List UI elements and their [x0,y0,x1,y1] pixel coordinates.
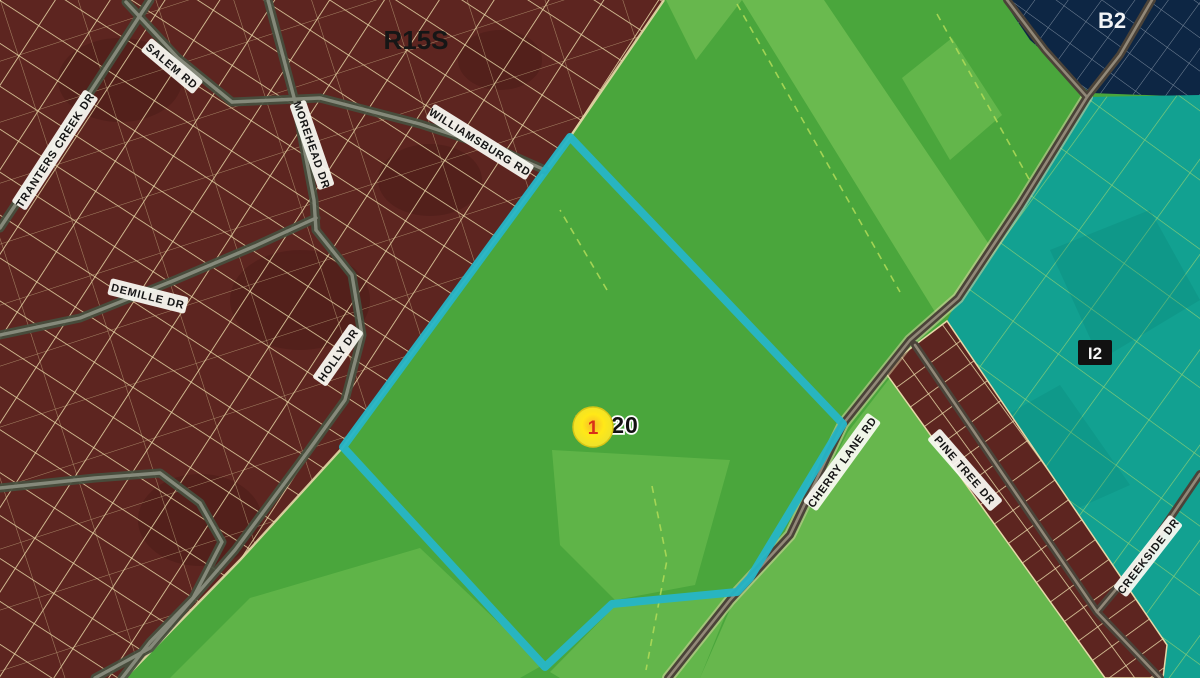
zone-label-i2: I2 [1078,340,1112,365]
svg-text:I2: I2 [1088,344,1102,363]
zone-label-r15s: R15S [383,25,448,55]
zoning-map-window: R15S B2 I2 TRANTERS CREEK DR SALEM RD MO… [0,0,1200,678]
zone-label-b2: B2 [1098,8,1126,33]
parcel-marker-number: 1 [588,418,599,439]
zoning-map-canvas: R15S B2 I2 TRANTERS CREEK DR SALEM RD MO… [0,0,1200,678]
